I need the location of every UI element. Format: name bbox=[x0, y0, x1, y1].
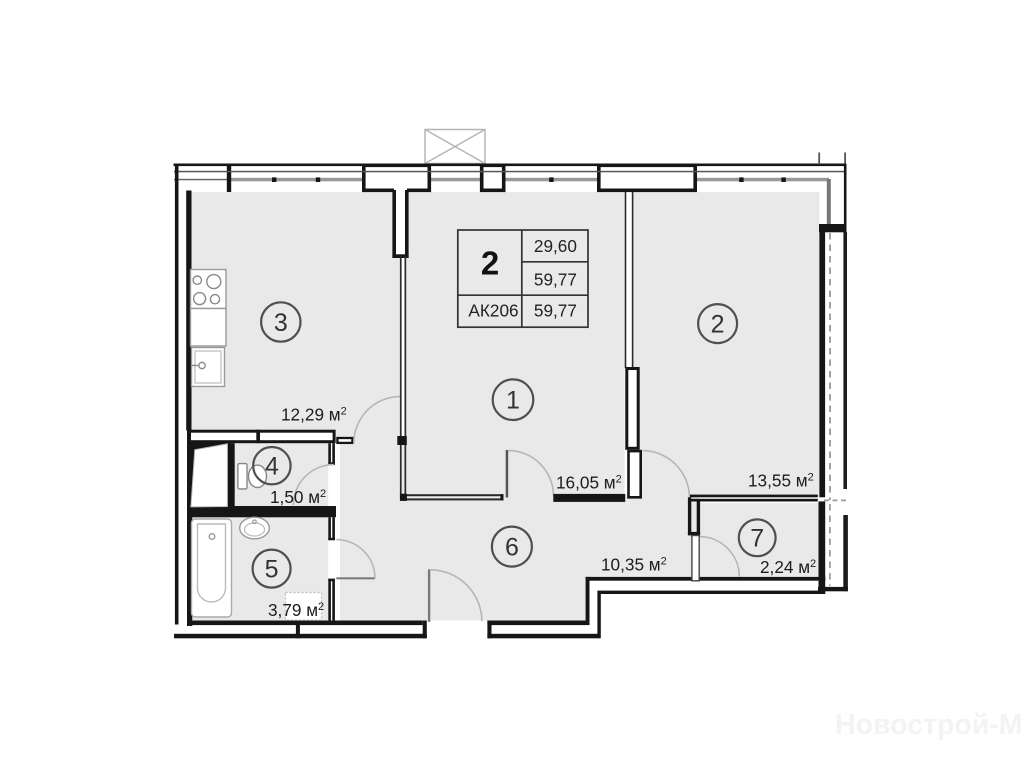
svg-text:2: 2 bbox=[481, 244, 499, 281]
svg-text:АК206: АК206 bbox=[468, 301, 518, 321]
svg-text:3: 3 bbox=[274, 309, 288, 337]
svg-text:2,24 м2: 2,24 м2 bbox=[760, 557, 816, 577]
svg-text:29,60: 29,60 bbox=[534, 236, 577, 256]
svg-text:59,77: 59,77 bbox=[534, 269, 577, 289]
svg-text:59,77: 59,77 bbox=[534, 301, 577, 321]
svg-text:3,79 м2: 3,79 м2 bbox=[268, 600, 324, 620]
svg-text:2: 2 bbox=[711, 310, 725, 338]
svg-text:6: 6 bbox=[505, 533, 519, 561]
svg-text:16,05 м2: 16,05 м2 bbox=[556, 472, 622, 492]
svg-text:13,55 м2: 13,55 м2 bbox=[748, 471, 814, 491]
svg-text:12,29 м2: 12,29 м2 bbox=[281, 405, 347, 425]
svg-text:Новострой-М: Новострой-М bbox=[835, 709, 1023, 741]
svg-text:1,50 м2: 1,50 м2 bbox=[270, 487, 326, 507]
svg-text:10,35 м2: 10,35 м2 bbox=[601, 554, 667, 574]
svg-text:1: 1 bbox=[506, 387, 520, 415]
svg-text:7: 7 bbox=[750, 525, 764, 553]
svg-text:4: 4 bbox=[265, 453, 279, 481]
svg-text:5: 5 bbox=[265, 555, 279, 583]
